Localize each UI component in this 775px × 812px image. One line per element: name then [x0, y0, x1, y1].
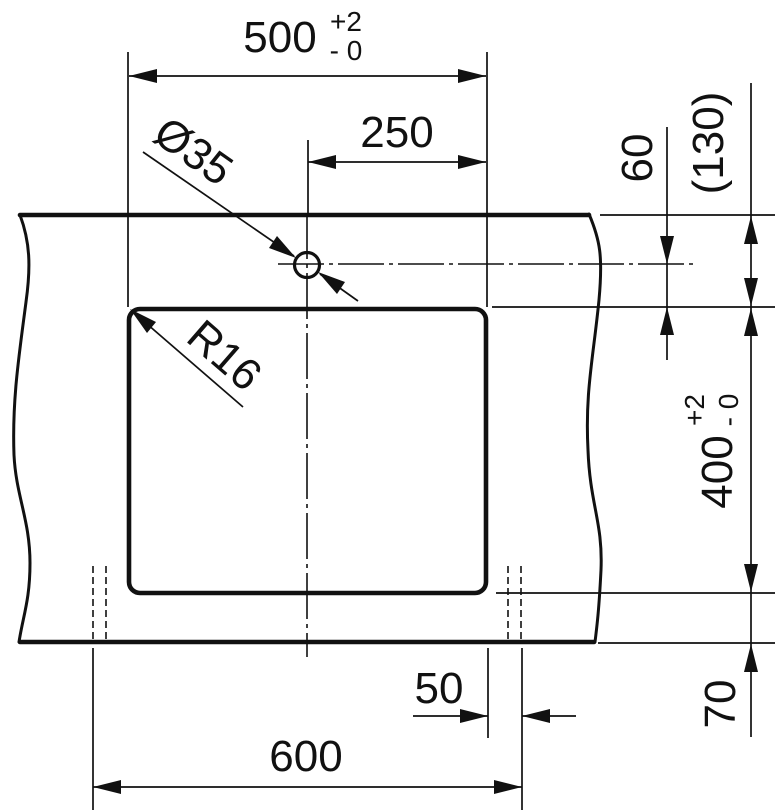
dim-250-label: 250 — [360, 108, 433, 157]
dim-130-label: (130) — [684, 92, 733, 195]
dim-60-label: 60 — [613, 134, 662, 183]
cutout-technical-drawing: 500 +2 - 0 250 Ø35 R16 60 (130) 400 +2 -… — [0, 0, 775, 812]
dim-400-label: 400 — [693, 435, 742, 508]
dim-500-tolerance-plus: +2 — [330, 6, 362, 37]
dim-50-label: 50 — [415, 664, 464, 713]
dim-500-label: 500 — [243, 13, 316, 62]
dim-600-label: 600 — [269, 732, 342, 781]
dim-500-tolerance-minus: - 0 — [330, 35, 363, 66]
dim-400-tolerance-plus: +2 — [679, 394, 710, 426]
drawing-canvas: 500 +2 - 0 250 Ø35 R16 60 (130) 400 +2 -… — [0, 0, 775, 812]
dim-70-label: 70 — [696, 680, 745, 729]
dim-400-tolerance-minus: - 0 — [713, 394, 744, 427]
